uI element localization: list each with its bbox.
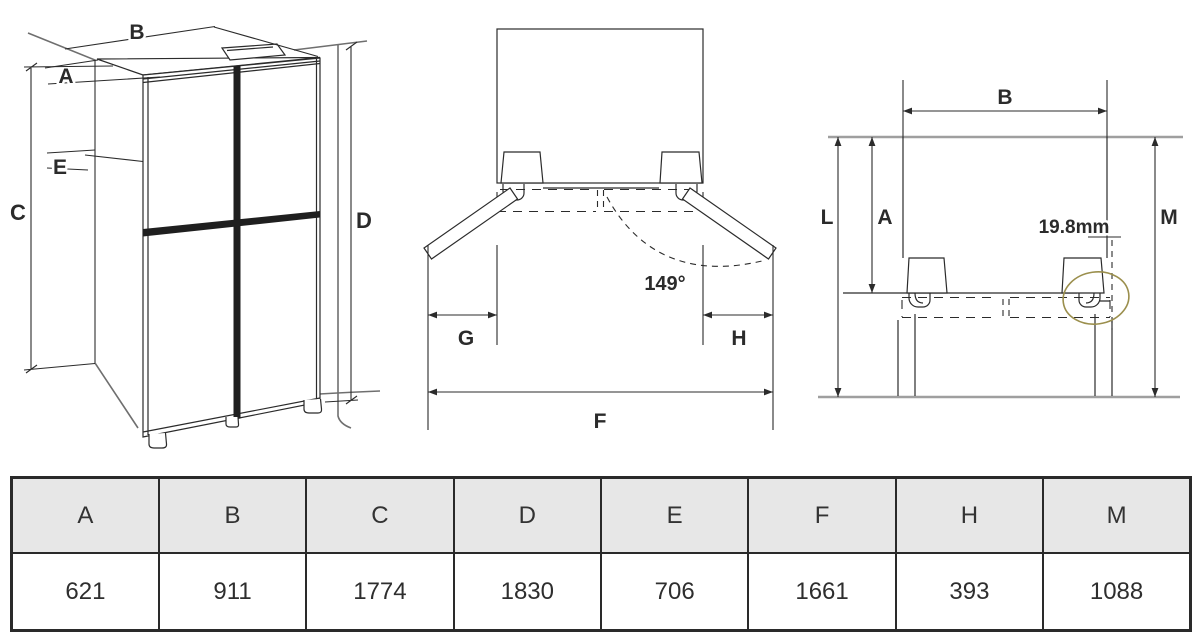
- dim-label-m: M: [1160, 206, 1178, 229]
- table-value-f: 1661: [748, 553, 895, 631]
- fridge-center-divider: [234, 66, 241, 420]
- table-value-row: 621 911 1774 1830 706 1661 393 1088: [12, 553, 1191, 631]
- hinge-gap-label: 19.8mm: [1039, 217, 1110, 238]
- table-header-a: A: [12, 478, 159, 554]
- table-value-m: 1088: [1043, 553, 1190, 631]
- dim-c-line: [24, 63, 113, 373]
- table-value-d: 1830: [454, 553, 601, 631]
- hinge-block-left-clearance: [907, 258, 947, 293]
- table-header-f: F: [748, 478, 895, 554]
- niche-right-edge: [338, 45, 351, 428]
- closed-door-center-split-clearance: [1003, 299, 1009, 317]
- hinge-block-left: [501, 152, 543, 183]
- dim-label-l: L: [821, 206, 834, 229]
- table-header-h: H: [896, 478, 1043, 554]
- table-header-e: E: [601, 478, 748, 554]
- dimension-table: A B C D E F H M 621 911 1774 1830 706 16…: [10, 476, 1192, 632]
- dim-label-g: G: [458, 327, 474, 350]
- niche-left-edge: [28, 33, 138, 428]
- dim-label-a-clearance: A: [877, 206, 892, 229]
- table-value-b: 911: [159, 553, 306, 631]
- table-header-d: D: [454, 478, 601, 554]
- fridge-foot-left: [149, 433, 167, 448]
- spec-sheet-page: B A E C D: [0, 0, 1202, 634]
- table-header-b: B: [159, 478, 306, 554]
- open-door-left: [424, 188, 518, 259]
- dim-d-line: [325, 42, 358, 404]
- dim-label-b-clearance: B: [997, 86, 1012, 109]
- closed-door-center-split: [598, 190, 604, 212]
- open-door-right-edges: [1095, 314, 1112, 396]
- dim-label-a-iso: A: [58, 65, 73, 88]
- doors-open-view: 149° G H F: [424, 29, 776, 433]
- dim-label-b-iso: B: [129, 21, 144, 44]
- dimension-drawings: B A E C D: [0, 0, 1202, 470]
- clearance-view: 19.8mm B L A M: [818, 80, 1183, 397]
- table-header-m: M: [1043, 478, 1190, 554]
- open-door-left-edges: [898, 314, 915, 396]
- dim-label-d-iso: D: [356, 208, 372, 233]
- table-value-a: 621: [12, 553, 159, 631]
- dim-label-f: F: [594, 410, 607, 433]
- fridge-front-face: [143, 58, 320, 437]
- dim-label-e-iso: E: [53, 156, 67, 179]
- table-header-row: A B C D E F H M: [12, 478, 1191, 554]
- closed-door-outline: [497, 190, 703, 212]
- dim-extension-lines: [428, 245, 773, 430]
- hinge-arm-right-clearance: [1079, 293, 1110, 307]
- table-header-c: C: [306, 478, 453, 554]
- isometric-view: B A E C D: [10, 21, 380, 448]
- hinge-block-right-clearance: [1062, 258, 1104, 293]
- door-angle-label: 149°: [644, 273, 685, 295]
- open-door-right: [683, 188, 777, 259]
- hinge-arm-left-clearance: [909, 293, 930, 307]
- table-value-e: 706: [601, 553, 748, 631]
- table-value-c: 1774: [306, 553, 453, 631]
- fridge-foot-right: [304, 399, 322, 413]
- table-value-h: 393: [896, 553, 1043, 631]
- dim-label-h: H: [731, 327, 746, 350]
- dim-label-c-iso: C: [10, 200, 26, 225]
- hinge-block-right: [660, 152, 702, 183]
- fridge-foot-middle: [226, 417, 239, 427]
